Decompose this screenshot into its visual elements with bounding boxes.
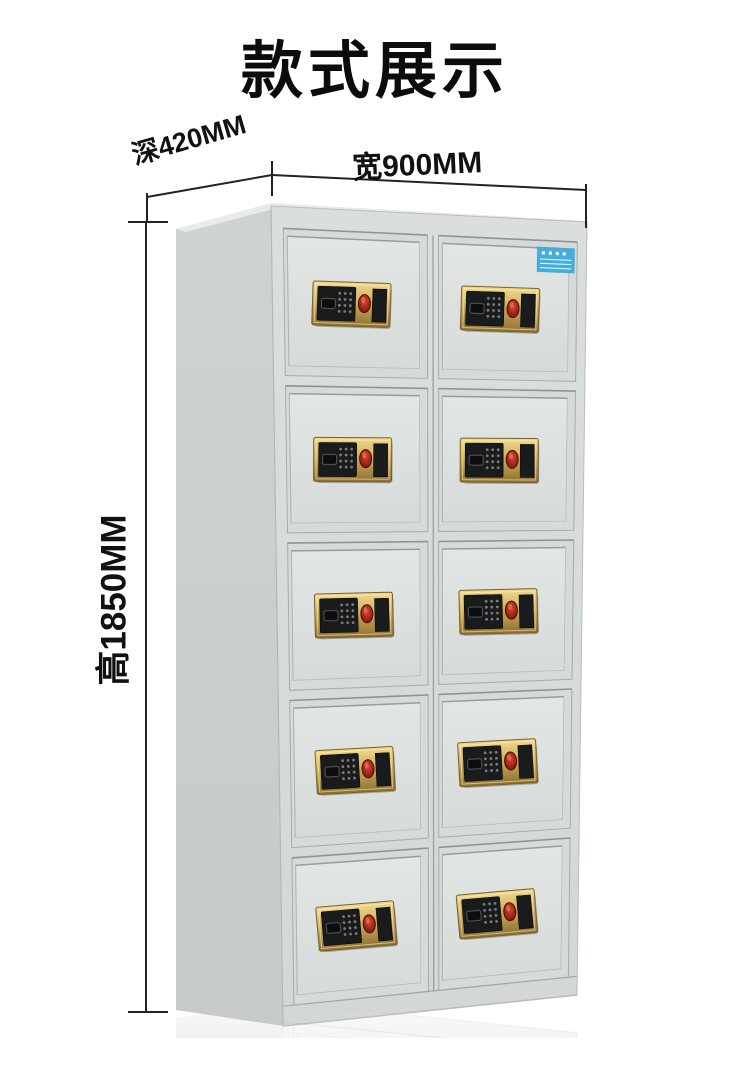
electronic-lock: [458, 739, 539, 789]
fingerprint-sensor: [362, 759, 375, 778]
electronic-lock: [316, 901, 399, 953]
fingerprint-sensor: [504, 752, 517, 771]
lock-cover-panel: [375, 753, 391, 787]
electronic-lock: [460, 286, 540, 334]
fingerprint-sensor: [505, 601, 517, 619]
lock-display: [470, 303, 484, 313]
locker-door: [286, 386, 428, 533]
locker-door: [439, 389, 576, 532]
lock-cover-panel: [372, 289, 387, 322]
electronic-lock: [313, 437, 392, 483]
fingerprint-sensor: [358, 294, 371, 312]
electronic-lock: [312, 281, 392, 329]
locker-door: [439, 838, 570, 990]
locker-door: [292, 848, 429, 1005]
fingerprint-sensor: [507, 299, 520, 317]
lock-cover-panel: [374, 444, 388, 477]
page-title: 款式展示: [0, 20, 750, 110]
lock-cover-panel: [520, 444, 534, 477]
locker-cabinet: [176, 203, 587, 1026]
locker-door: [283, 228, 427, 378]
locker-door: [439, 540, 574, 685]
electronic-lock: [456, 888, 539, 940]
lock-display: [323, 454, 337, 464]
lock-cover-panel: [518, 745, 534, 779]
lock-display: [324, 610, 338, 620]
electronic-lock: [460, 438, 539, 484]
lock-display: [326, 922, 341, 933]
lock-display: [467, 910, 482, 921]
locker-door: [288, 542, 429, 691]
lock-cover-panel: [519, 595, 534, 628]
lock-display: [321, 298, 335, 308]
locker-door: [439, 689, 572, 837]
fingerprint-sensor: [506, 450, 518, 468]
lock-cover-panel: [520, 294, 535, 327]
lock-cover-panel: [374, 598, 389, 631]
electronic-lock: [459, 589, 539, 636]
electronic-lock: [315, 746, 396, 796]
height-dimension-label: 高1850MM: [86, 514, 137, 685]
electronic-lock: [314, 592, 394, 639]
locker-door: [290, 695, 429, 848]
fingerprint-sensor: [361, 605, 373, 623]
lock-cover-panel: [516, 895, 533, 929]
lock-cover-panel: [376, 907, 393, 941]
lock-display: [468, 607, 482, 617]
label-sticker: [537, 247, 575, 273]
fingerprint-sensor: [360, 450, 372, 468]
lock-display: [469, 455, 483, 465]
lock-display: [325, 766, 340, 777]
lock-display: [467, 759, 482, 770]
width-dimension-label: 宽900MM: [351, 137, 483, 187]
cabinet-side-panel: [176, 206, 283, 1026]
